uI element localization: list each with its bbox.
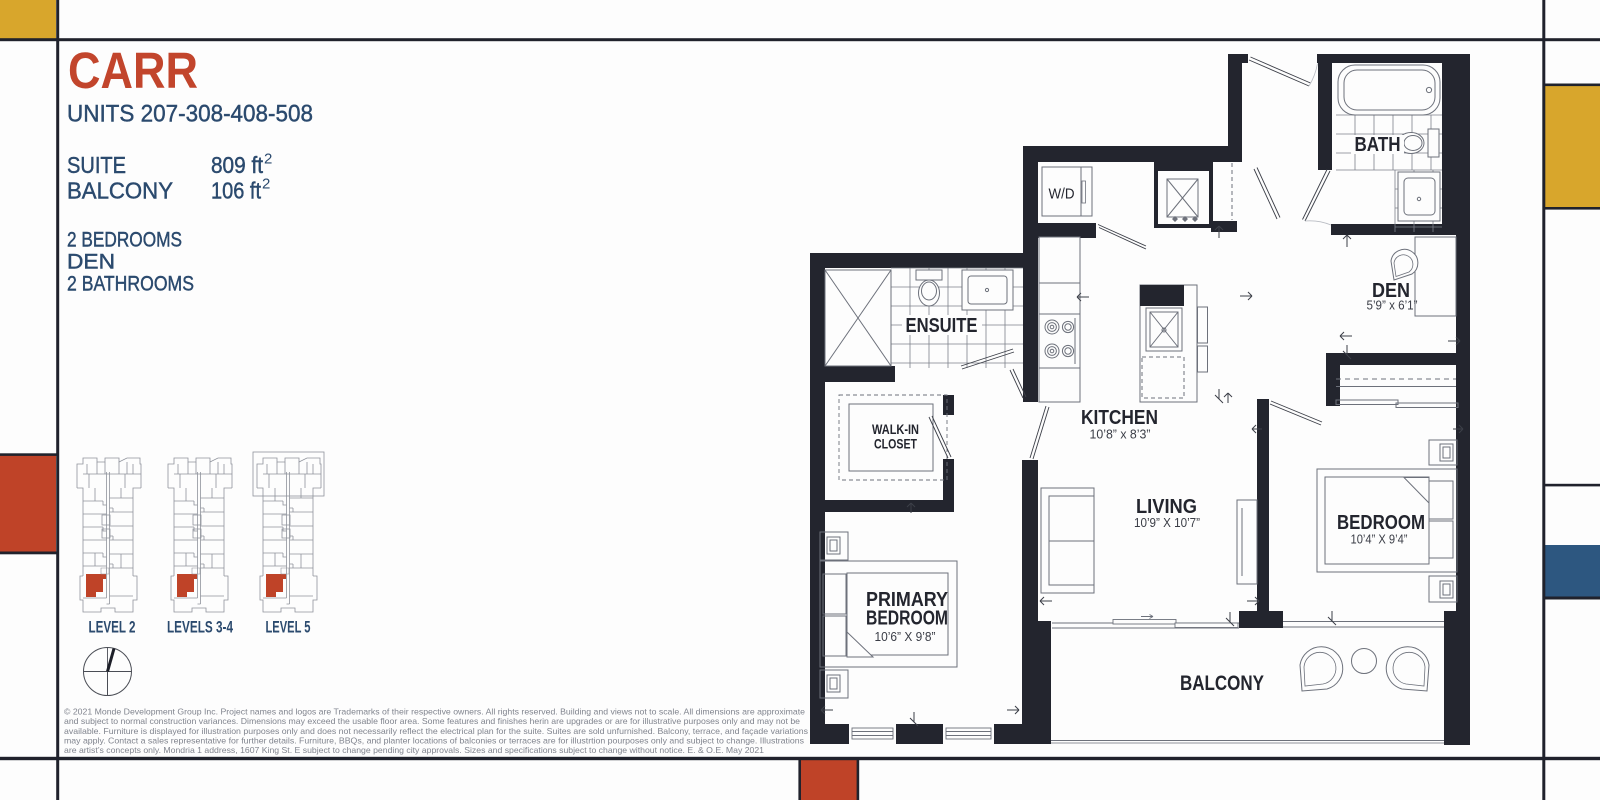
svg-text:BEDROOM: BEDROOM xyxy=(866,608,948,630)
svg-text:LEVEL 2: LEVEL 2 xyxy=(89,618,136,637)
svg-text:LEVELS 3-4: LEVELS 3-4 xyxy=(167,618,233,637)
svg-text:WALK-IN: WALK-IN xyxy=(872,422,919,437)
svg-text:LIVING: LIVING xyxy=(1136,496,1197,518)
svg-text:BALCONY: BALCONY xyxy=(1180,672,1264,695)
svg-text:KITCHEN: KITCHEN xyxy=(1081,407,1158,429)
svg-text:BALCONY: BALCONY xyxy=(67,178,173,204)
svg-text:CARR: CARR xyxy=(68,42,198,99)
svg-text:CLOSET: CLOSET xyxy=(874,437,918,452)
svg-text:W/D: W/D xyxy=(1049,187,1075,203)
svg-text:10’6” X 9’8”: 10’6” X 9’8” xyxy=(875,630,936,644)
svg-text:106 ft: 106 ft xyxy=(211,178,262,204)
svg-text:5’9” x 6’1”: 5’9” x 6’1” xyxy=(1367,299,1418,313)
svg-text:available. Furniture is displ: available. Furniture is displayed for il… xyxy=(64,726,808,736)
svg-text:10’9” X 10’7”: 10’9” X 10’7” xyxy=(1134,516,1200,530)
svg-text:809 ft: 809 ft xyxy=(211,152,264,178)
svg-text:BEDROOM: BEDROOM xyxy=(1337,512,1425,534)
svg-text:and subject to normal construc: and subject to normal construction varia… xyxy=(64,716,800,726)
svg-text:2: 2 xyxy=(264,151,272,168)
svg-text:2: 2 xyxy=(262,176,270,193)
svg-text:10’8” x 8’3”: 10’8” x 8’3” xyxy=(1090,428,1151,442)
svg-text:ENSUITE: ENSUITE xyxy=(906,315,978,337)
svg-text:may apply. Contact a sales re: may apply. Contact a sales representativ… xyxy=(64,735,804,745)
svg-text:2 BATHROOMS: 2 BATHROOMS xyxy=(67,272,194,296)
svg-text:10’4” X 9’4”: 10’4” X 9’4” xyxy=(1351,533,1408,547)
svg-text:SUITE: SUITE xyxy=(67,152,126,178)
svg-text:© 2021 Monde Development Group: © 2021 Monde Development Group Inc. Proj… xyxy=(64,707,805,717)
svg-text:DEN: DEN xyxy=(67,250,115,274)
svg-text:LEVEL 5: LEVEL 5 xyxy=(266,618,311,637)
svg-text:UNITS 207-308-408-508: UNITS 207-308-408-508 xyxy=(67,101,313,128)
svg-text:are artist’s concepts only. M: are artist’s concepts only. Mondria 1 ad… xyxy=(64,745,764,755)
svg-text:BATH: BATH xyxy=(1355,134,1401,156)
svg-text:2 BEDROOMS: 2 BEDROOMS xyxy=(67,228,182,252)
